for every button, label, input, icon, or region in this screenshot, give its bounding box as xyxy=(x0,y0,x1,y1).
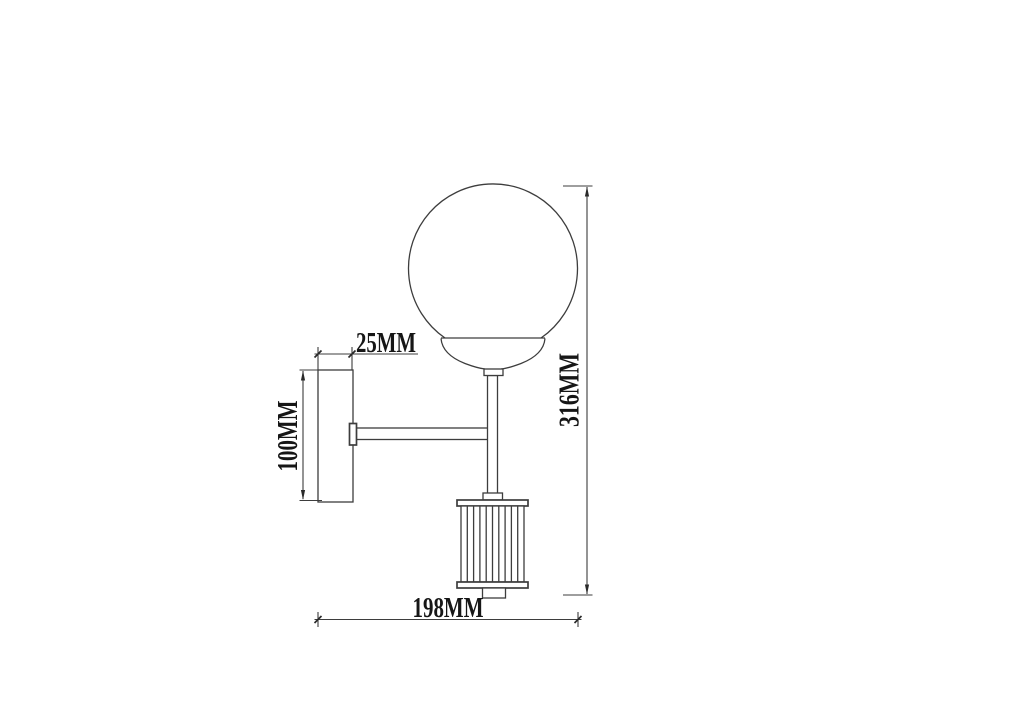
dimension-label-316mm: 316MM xyxy=(555,353,586,427)
dimension-overall-height: 316MM xyxy=(555,186,593,595)
drawing-canvas: 25MM 100MM 316MM 198MM xyxy=(0,0,1024,723)
lamp-outline xyxy=(318,184,578,598)
dimension-overall-depth: 198MM xyxy=(315,593,582,627)
dimension-label-25mm: 25MM xyxy=(356,328,416,359)
cylinder-tab xyxy=(483,588,506,598)
arrow-down xyxy=(301,490,305,500)
cylinder-bottom-rim xyxy=(457,582,528,588)
arrow-down xyxy=(585,585,589,595)
shade-holder-bell xyxy=(441,339,545,370)
mount-flange xyxy=(350,424,357,446)
dimension-label-198mm: 198MM xyxy=(413,593,484,624)
wall-plate xyxy=(318,370,353,502)
lamp-dimension-drawing: 25MM 100MM 316MM 198MM xyxy=(0,0,1024,723)
mount-arm xyxy=(356,428,488,440)
shade-collar xyxy=(484,369,503,376)
arrow-up xyxy=(585,187,589,197)
dimension-label-100mm: 100MM xyxy=(273,401,304,472)
arrow-up xyxy=(301,371,305,381)
globe-shade xyxy=(409,184,578,338)
dimension-plate-depth: 25MM xyxy=(315,328,419,370)
cylinder-top-rim xyxy=(457,500,528,506)
stem xyxy=(488,376,498,494)
stem-collar xyxy=(483,493,503,500)
dimension-plate-height: 100MM xyxy=(273,370,322,501)
